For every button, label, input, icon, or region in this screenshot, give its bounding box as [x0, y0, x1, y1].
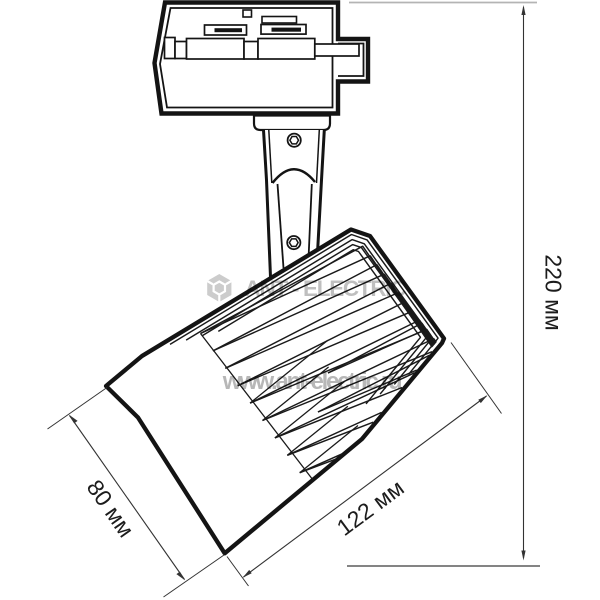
svg-text:ANT - ELECTRIC: ANT - ELECTRIC: [245, 276, 407, 301]
svg-text:80 мм: 80 мм: [82, 475, 140, 542]
svg-text:220 мм: 220 мм: [541, 254, 567, 330]
svg-text:122 мм: 122 мм: [332, 474, 409, 540]
svg-text:www.ant-electric.ru: www.ant-electric.ru: [222, 368, 403, 395]
